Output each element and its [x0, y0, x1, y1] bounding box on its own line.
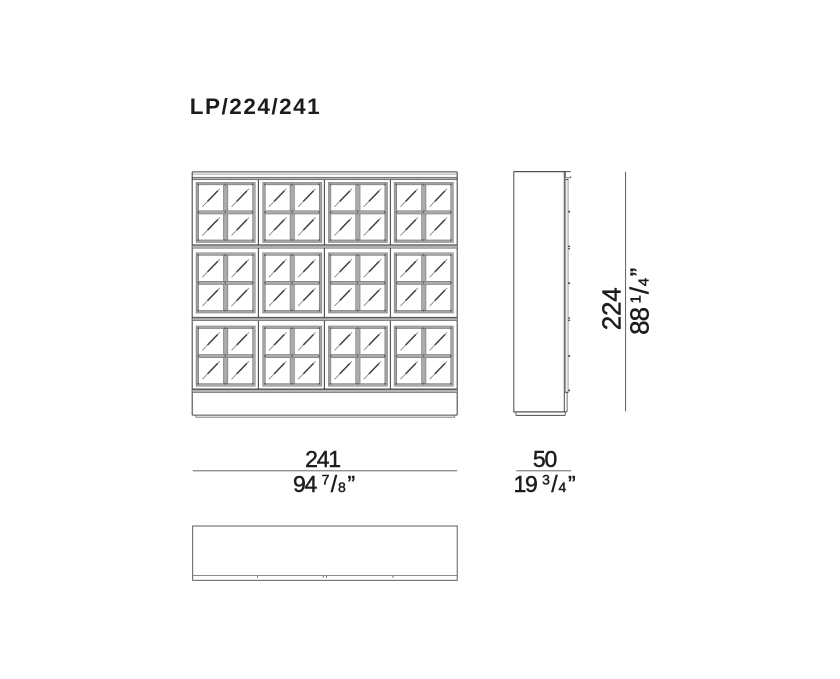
svg-text:50: 50: [533, 446, 557, 472]
svg-text:LP/224/241: LP/224/241: [190, 94, 321, 119]
svg-text:224: 224: [597, 288, 627, 331]
svg-text:241: 241: [305, 446, 340, 472]
